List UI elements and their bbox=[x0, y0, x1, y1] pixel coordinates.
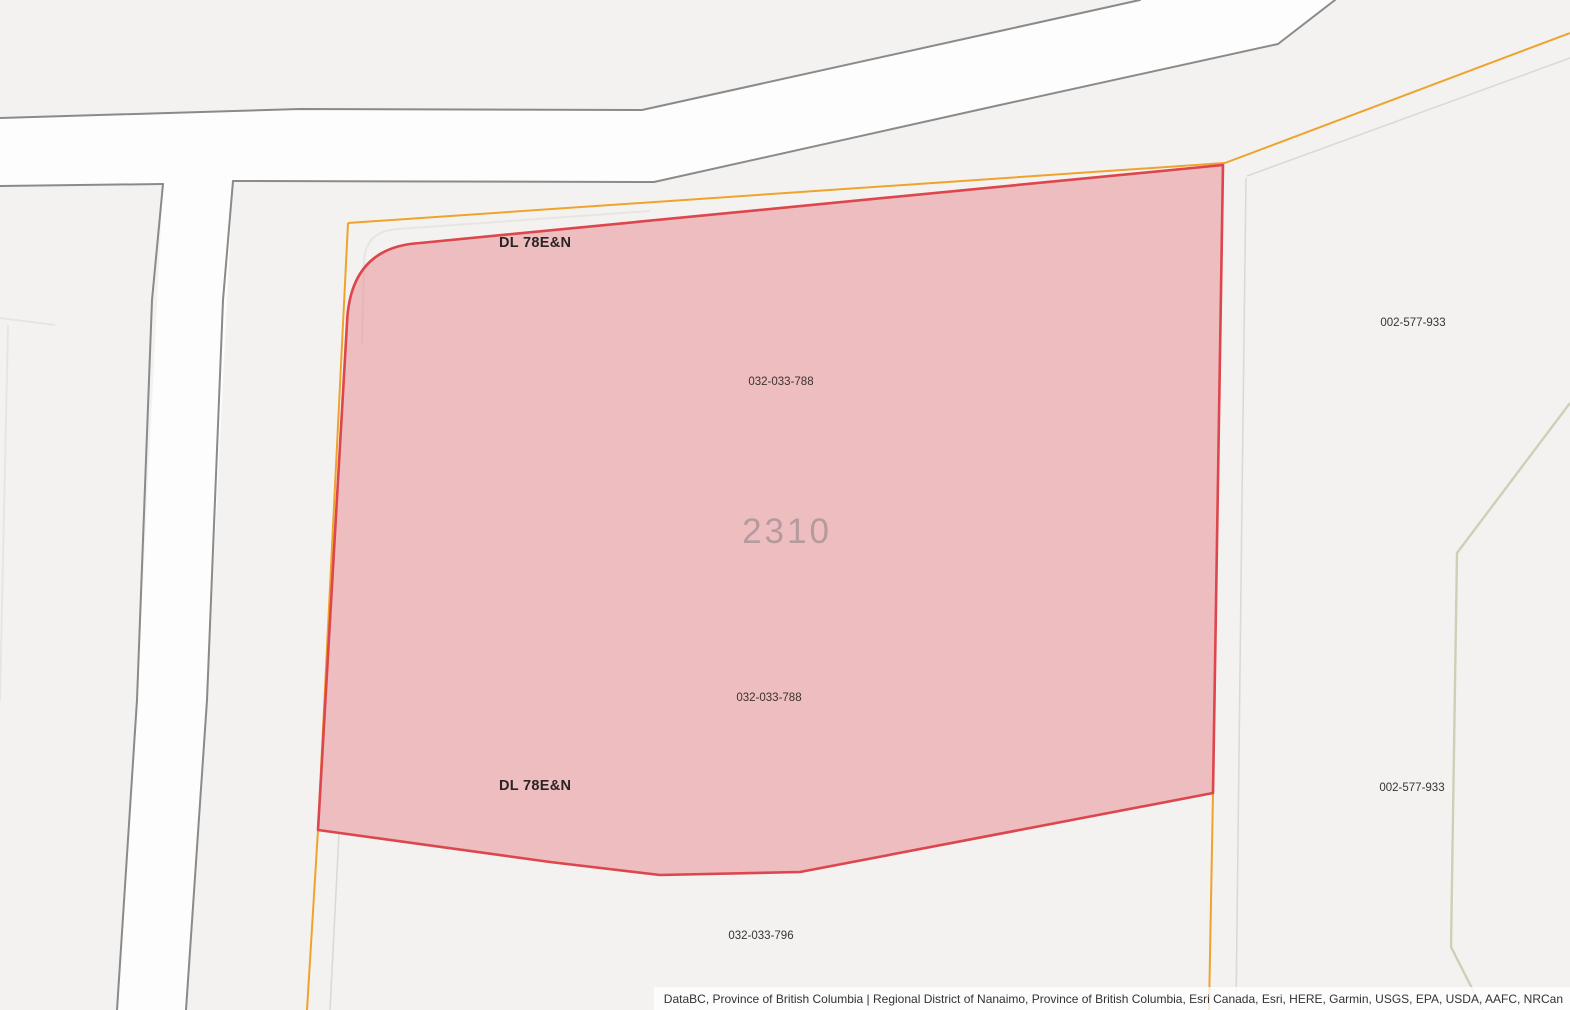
map-viewport[interactable]: DL 78E&N 032-033-788 2310 032-033-788 DL… bbox=[0, 0, 1570, 1010]
road-surface-vertical bbox=[117, 181, 233, 1010]
road-surface-horizontal bbox=[0, 0, 1335, 186]
district-lot-label-bottom: DL 78E&N bbox=[499, 778, 571, 794]
cadastral-boundary-east-vertical bbox=[1236, 178, 1246, 1010]
pid-label-east-top: 002-577-933 bbox=[1380, 317, 1445, 329]
map-attribution-text: DataBC, Province of British Columbia | R… bbox=[664, 992, 1563, 1006]
selected-parcel-number: 2310 bbox=[742, 512, 832, 551]
boundary-orange-bottom-right bbox=[1209, 793, 1213, 1010]
map-canvas[interactable]: DL 78E&N 032-033-788 2310 032-033-788 DL… bbox=[0, 0, 1570, 1010]
pid-label-bottom: 032-033-788 bbox=[736, 692, 801, 704]
pid-label-east-bottom: 002-577-933 bbox=[1379, 782, 1444, 794]
cadastral-boundary-olive bbox=[1451, 403, 1570, 1010]
pid-label-south: 032-033-796 bbox=[728, 930, 793, 942]
district-lot-label-top: DL 78E&N bbox=[499, 235, 571, 251]
map-attribution: DataBC, Province of British Columbia | R… bbox=[654, 987, 1570, 1010]
pid-label-top: 032-033-788 bbox=[748, 376, 813, 388]
cadastral-boundary-east-diagonal bbox=[1247, 58, 1570, 176]
cadastral-boundary-below-parcel bbox=[330, 833, 339, 1010]
cadastral-boundary-far-left bbox=[0, 318, 55, 700]
